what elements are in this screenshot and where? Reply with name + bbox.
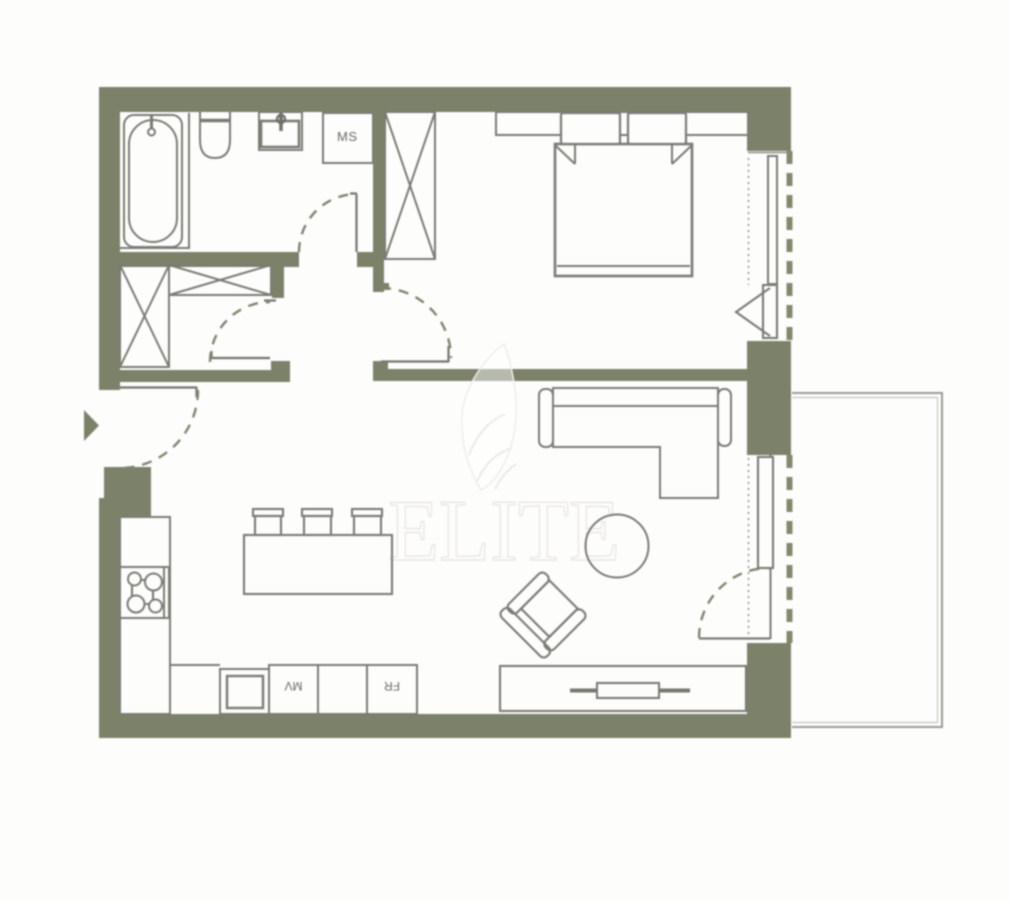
svg-text:FR: FR (384, 679, 400, 693)
svg-text:ELITE: ELITE (388, 482, 620, 579)
svg-text:MS: MS (337, 129, 358, 144)
svg-text:MV: MV (285, 679, 303, 693)
